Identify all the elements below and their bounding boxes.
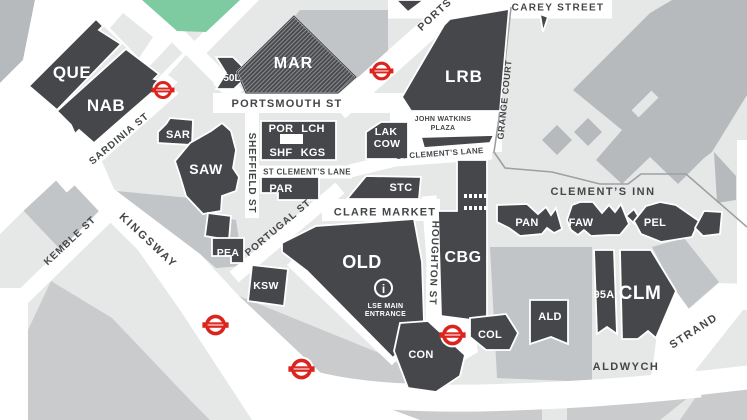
svg-text:QUE: QUE (53, 63, 91, 82)
svg-text:CAREY STREET: CAREY STREET (512, 3, 605, 14)
svg-text:ALDWYCH: ALDWYCH (593, 361, 660, 373)
svg-text:CLEMENT’S INN: CLEMENT’S INN (550, 186, 655, 198)
svg-text:LSE MAIN: LSE MAIN (368, 303, 404, 310)
svg-text:FAW: FAW (569, 217, 594, 229)
svg-text:JOHN WATKINS: JOHN WATKINS (415, 116, 472, 123)
svg-text:ENTRANCE: ENTRANCE (365, 311, 406, 318)
svg-text:COL: COL (478, 329, 502, 341)
svg-text:CLM: CLM (619, 283, 662, 304)
svg-text:OLD: OLD (342, 252, 382, 272)
svg-text:PEA: PEA (217, 247, 240, 259)
svg-text:SHEFFIELD ST: SHEFFIELD ST (246, 133, 257, 214)
svg-text:KSW: KSW (253, 280, 278, 292)
svg-text:LCH: LCH (301, 123, 325, 135)
svg-text:PLAZA: PLAZA (431, 125, 456, 132)
svg-text:LAK: LAK (375, 126, 398, 138)
svg-text:MAR: MAR (274, 55, 313, 72)
svg-text:STC: STC (390, 182, 413, 194)
svg-text:SAR: SAR (166, 129, 190, 141)
svg-text:50L: 50L (223, 73, 240, 84)
svg-text:i: i (382, 282, 385, 296)
svg-text:KGS: KGS (301, 147, 326, 159)
svg-text:POR: POR (269, 123, 294, 135)
svg-text:SHF: SHF (270, 147, 293, 159)
svg-text:LRB: LRB (445, 67, 483, 86)
svg-text:NAB: NAB (87, 96, 125, 115)
svg-text:CON: CON (408, 349, 433, 361)
svg-text:SAW: SAW (189, 161, 223, 177)
svg-text:PEL: PEL (644, 217, 666, 229)
svg-text:CBG: CBG (444, 249, 481, 266)
svg-text:PAN: PAN (515, 217, 538, 229)
svg-text:PORTSMOUTH ST: PORTSMOUTH ST (232, 98, 343, 110)
svg-text:PAR: PAR (269, 183, 292, 195)
svg-text:CLARE MARKET: CLARE MARKET (334, 207, 436, 219)
svg-text:95A: 95A (593, 289, 614, 301)
svg-text:ST CLEMENT’S LANE: ST CLEMENT’S LANE (263, 168, 351, 177)
svg-text:ALD: ALD (538, 311, 562, 323)
svg-text:COW: COW (374, 138, 401, 150)
